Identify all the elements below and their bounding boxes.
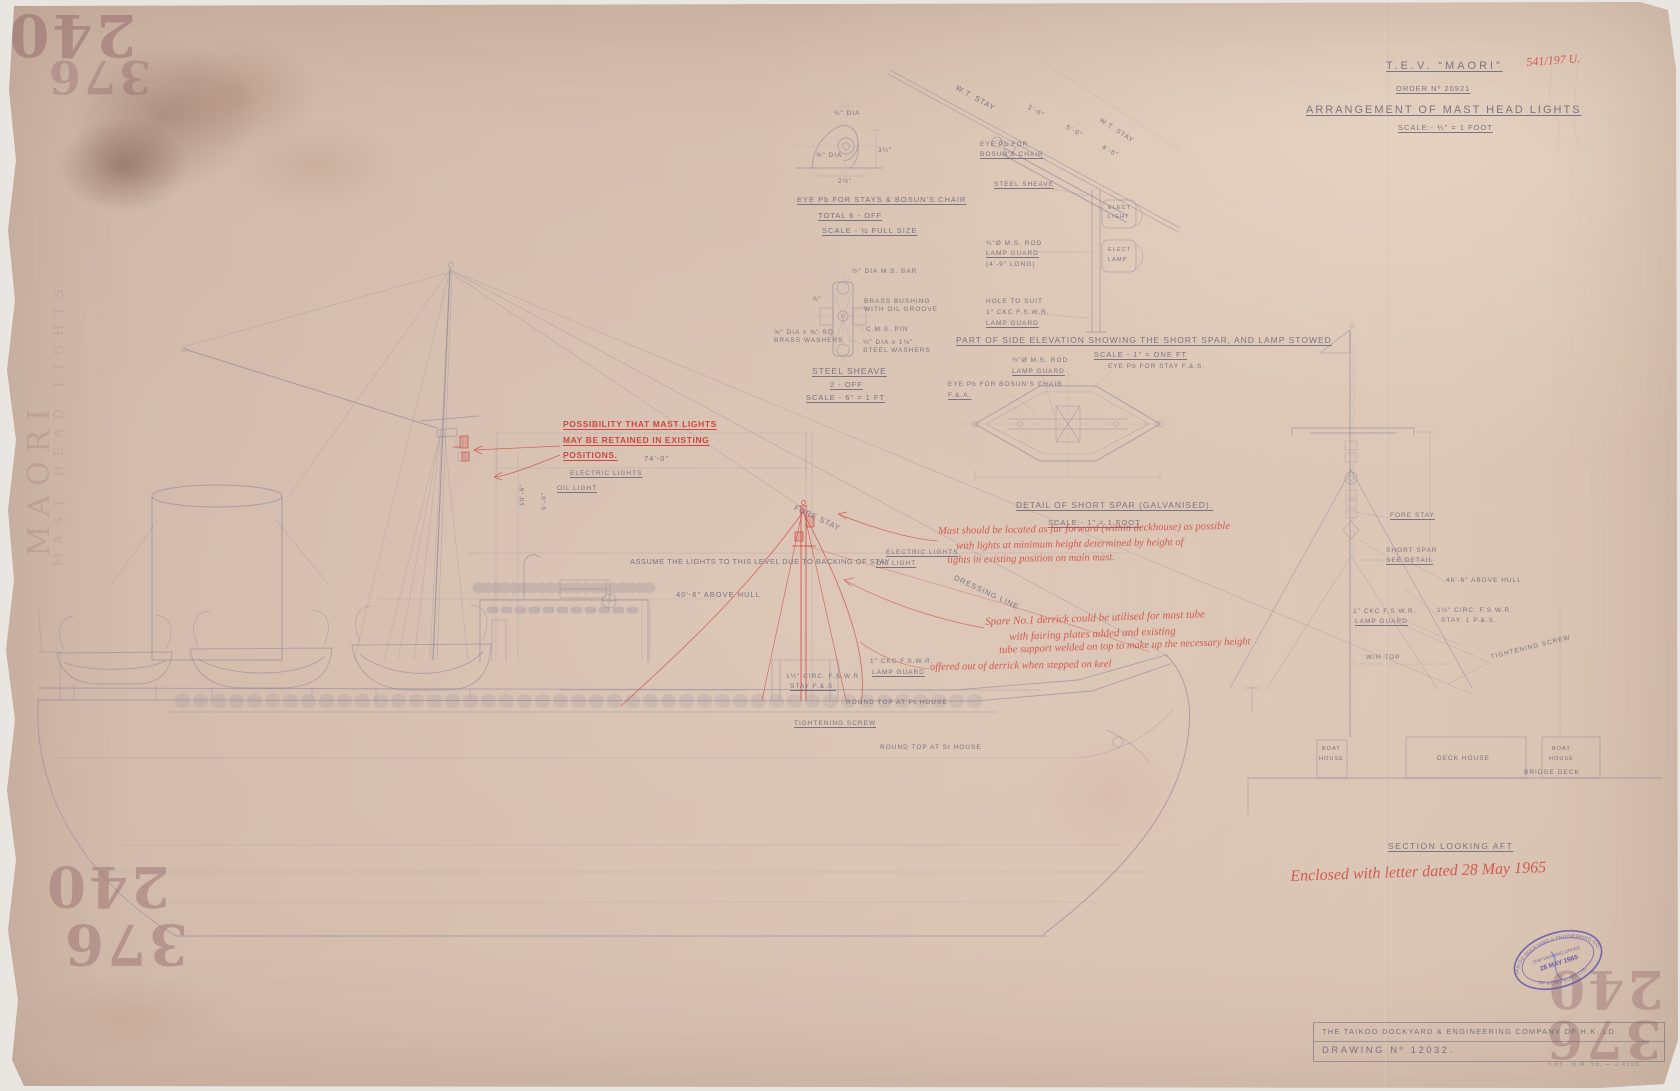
spar-elev-scale: SCALE - 1" = ONE FT xyxy=(1094,351,1187,360)
oil-light-label: OIL LIGHT xyxy=(557,485,597,492)
sheave-label-washer: STEEL WASHERS xyxy=(863,347,931,354)
boat-house-box-label: BOAT xyxy=(1322,746,1341,752)
lamp-guard-spec-label: LAMP GUARD xyxy=(872,669,925,676)
short-spar-ref-label: SEE DETAIL xyxy=(1386,557,1433,564)
eye-chair-label: BOSUN'S CHAIR xyxy=(980,151,1044,158)
footer-drawing-number: DRAWING Nº 12032. xyxy=(1322,1046,1455,1057)
footer-print-code: 5.65 · B.M. 5d. — 2.4153. xyxy=(1548,1062,1642,1069)
eye-detail-qty: TOTAL 6 - OFF xyxy=(818,212,882,221)
elect-light-box-label: LIGHT xyxy=(1108,214,1129,220)
eye-detail-title: EYE Pb FOR STAYS & BOSUN'S CHAIR xyxy=(797,196,966,205)
rod-guard-label: (4'-9" LONG) xyxy=(986,261,1036,268)
elect-lamp-box-label: LAMP xyxy=(1108,257,1127,263)
sheave-title: STEEL SHEAVE xyxy=(812,367,887,377)
paper-crease xyxy=(1385,0,1388,1091)
stay-spec-label: 1½" CIRC. F.S.W.R. xyxy=(786,673,862,680)
elect-light-box-label: ELECT xyxy=(1108,205,1131,211)
round-top-label: ROUND TOP AT Pt HOUSE xyxy=(846,699,948,706)
wheelhouse-top-label: W/H TOP xyxy=(1366,654,1401,661)
lamp-guard-spec-label: 1" CKC F.S.W.R. xyxy=(870,658,934,665)
rod-guard-label: LAMP GUARD xyxy=(986,250,1039,257)
red-note-retained: MAY BE RETAINED IN EXISTING xyxy=(563,436,709,446)
boat-house-box-label: HOUSE xyxy=(1549,756,1574,762)
tightening-screw-label: TIGHTENING SCREW xyxy=(794,720,876,727)
title-scale: SCALE:- ¼" = 1 FOOT xyxy=(1398,124,1493,133)
sheave-dim: ⅞" xyxy=(812,296,822,303)
section-title: SECTION LOOKING AFT xyxy=(1388,842,1513,852)
photograph-backdrop: 240 376 240 376 240 376 MAORI MAST HEAD … xyxy=(0,0,1680,1091)
above-hull-note: 40'-6" ABOVE HULL xyxy=(676,591,761,600)
eye-dim: ⅝" DIA xyxy=(816,152,842,159)
section-stay-spec-label: 1½" CIRC. F.S.W.R. xyxy=(1437,607,1513,614)
sheave-label-bushing: WITH OIL GROOVE xyxy=(864,306,938,313)
deck-house-box-label: DECK HOUSE xyxy=(1437,755,1490,762)
hole-label: 1" CKC F.S.W.R. xyxy=(986,309,1050,316)
hole-label: HOLE TO SUIT xyxy=(986,298,1043,305)
sheave-qty: 2 - OFF xyxy=(830,381,863,390)
hole-label: LAMP GUARD xyxy=(986,320,1039,327)
paper-crease xyxy=(1200,508,1680,510)
footer-company-name: THE TAIKOO DOCKYARD & ENGINEERING COMPAN… xyxy=(1322,1028,1618,1037)
order-number: ORDER Nº 20921 xyxy=(1396,85,1470,94)
sheave-label-brass: ⅝" DIA x ⅝" SQ xyxy=(774,329,834,336)
eye-dim: 2½" xyxy=(838,178,852,185)
bridge-deck-label: BRIDGE DECK xyxy=(1524,769,1580,776)
sheave-label-washer: ¼" DIA x 1⅛" xyxy=(863,339,913,346)
sheave-label-brass: BRASS WASHERS xyxy=(774,337,843,344)
plan-rod-label: LAMP GUARD xyxy=(1012,368,1065,375)
electric-lights-label: ELECTRIC LIGHTS xyxy=(570,470,642,477)
drawing-sheet: 240 376 240 376 240 376 MAORI MAST HEAD … xyxy=(0,0,1680,1091)
drawing-linework xyxy=(0,0,1680,1091)
office-date-stamp: TAIKOO DOCKYARD & ENGINEERING CO. OF HON… xyxy=(1488,912,1628,1008)
sheave-label-bushing: BRASS BUSHING xyxy=(864,298,930,305)
section-lamp-guard-label: LAMP GUARD xyxy=(1355,618,1408,625)
boat-house-box-label: BOAT xyxy=(1552,746,1571,752)
eye-chair-label: EYE Pb FOR xyxy=(980,141,1028,148)
plan-rod-label: ¾"Ø M.S. ROD xyxy=(1012,357,1068,364)
red-note-retained: POSITIONS. xyxy=(563,451,618,461)
rod-guard-label: ¾"Ø M.S. ROD xyxy=(986,240,1042,247)
plan-eye-stay-label: EYE Pb FOR STAY F.&.S. xyxy=(1108,363,1205,370)
eye-detail-scale: SCALE - ½ FULL SIZE xyxy=(822,227,917,236)
mast-dim: 10'-6" xyxy=(519,483,526,506)
sheave-label-pin: C.M.S. PIN xyxy=(866,326,909,333)
assume-level-note: ASSUME THE LIGHTS TO THIS LEVEL DUE TO B… xyxy=(630,558,890,567)
ship-name: T.E.V. “MAORI” xyxy=(1386,60,1503,73)
red-note-retained: POSSIBILITY THAT MAST LIGHTS xyxy=(563,420,717,430)
round-top-label: ROUND TOP AT St HOUSE xyxy=(880,744,982,751)
section-stay-spec-label: STAY. 1 P.&.S. xyxy=(1441,617,1497,624)
plan-eye-chair-label: EYE Pb FOR BOSUN'S CHAIR xyxy=(948,381,1063,388)
spar-elev-title: PART OF SIDE ELEVATION SHOWING THE SHORT… xyxy=(956,336,1332,346)
section-fore-stay-label: FORE STAY xyxy=(1390,512,1435,519)
drawing-number-box: THE TAIKOO DOCKYARD & ENGINEERING COMPAN… xyxy=(1313,1022,1665,1062)
spar-plan-title: DETAIL OF SHORT SPAR (GALVANISED). xyxy=(1016,501,1213,511)
section-above-hull-dim: 46'-6" ABOVE HULL xyxy=(1446,577,1522,584)
sheave-label-bar: ½" DIA M.S. BAR xyxy=(852,268,917,275)
plan-eye-chair-label: F.&.A. xyxy=(948,392,971,399)
steel-sheave-label: STEEL SHEAVE xyxy=(994,181,1054,188)
sheave-scale: SCALE - 6" = 1 FT xyxy=(806,394,885,403)
drawing-title: ARRANGEMENT OF MAST HEAD LIGHTS xyxy=(1306,104,1582,117)
elect-lamp-box-label: ELECT xyxy=(1108,247,1131,253)
boat-house-box-label: HOUSE xyxy=(1319,756,1344,762)
eye-dim: 3¼" xyxy=(878,147,892,154)
short-spar-ref-label: SHORT SPAR xyxy=(1386,547,1438,554)
dimension-74ft: 74'-0" xyxy=(644,455,669,464)
stay-spec-label: STAY F.&.S. xyxy=(790,683,836,690)
mast-dim: 9'-0" xyxy=(541,492,548,510)
eye-dim: ¾" DIA xyxy=(834,110,860,117)
